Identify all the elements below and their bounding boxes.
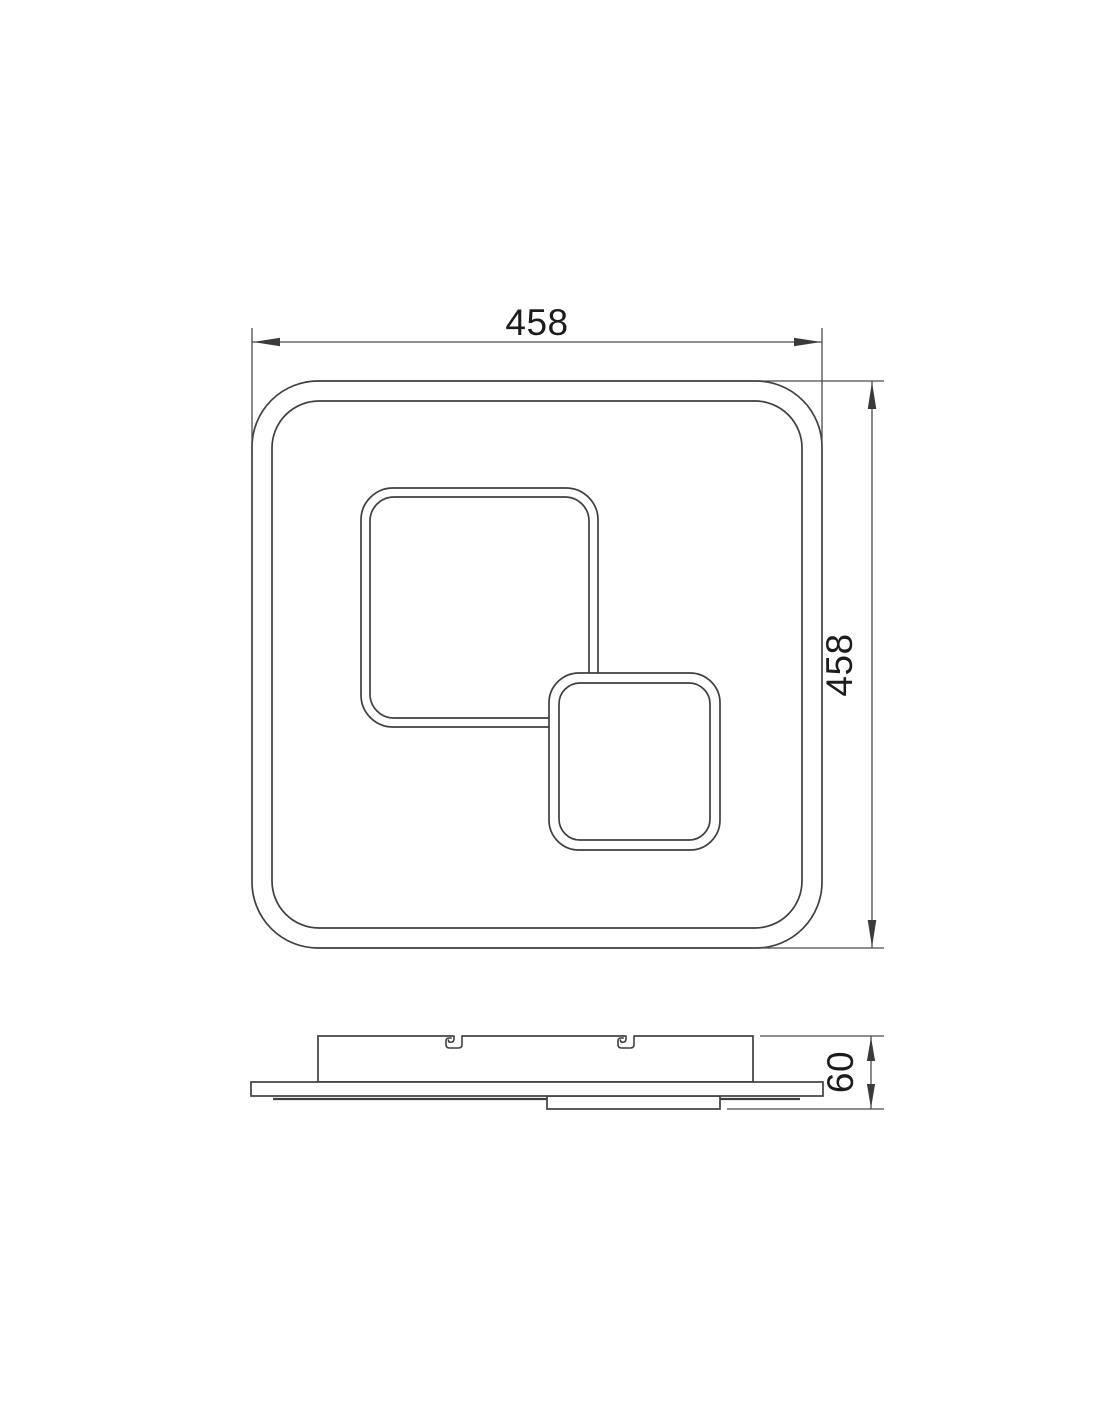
technical-drawing-page: 458 458 xyxy=(0,0,1100,1422)
outer-frame-inner-outline xyxy=(272,401,802,928)
dimension-drawing: 458 458 xyxy=(0,0,1100,1422)
small-square-outline xyxy=(549,673,720,850)
height-dim-label: 458 xyxy=(819,633,860,696)
mounting-box xyxy=(318,1036,753,1082)
lamp-panel-profile xyxy=(251,1082,823,1096)
width-dim-label: 458 xyxy=(505,302,568,343)
arrow-up-icon xyxy=(868,382,877,409)
outer-frame-outline xyxy=(252,381,822,948)
arrow-left-icon xyxy=(253,338,280,347)
small-square-profile xyxy=(547,1096,720,1109)
arrow-up-icon xyxy=(867,1037,875,1061)
depth-dim-label: 60 xyxy=(820,1051,861,1093)
arrow-right-icon xyxy=(794,338,821,347)
top-view xyxy=(252,381,822,948)
side-view xyxy=(251,1034,823,1109)
width-dimension: 458 xyxy=(252,302,822,450)
arrow-down-icon xyxy=(867,1084,875,1108)
height-dimension: 458 xyxy=(756,381,884,948)
arrow-down-icon xyxy=(868,920,877,947)
